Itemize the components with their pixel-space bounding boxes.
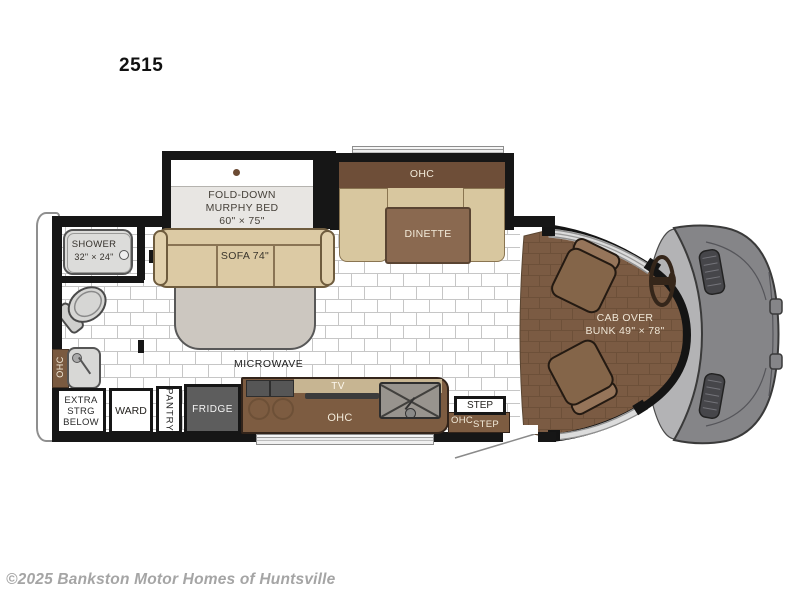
- tv-label: TV: [294, 381, 382, 392]
- floorplan-page: 2515: [0, 0, 800, 600]
- fridge-label: FRIDGE: [192, 404, 233, 415]
- wall-bath-bottom: [52, 276, 144, 283]
- cab-over-bunk-label: CAB OVER BUNK 49" × 78": [563, 312, 687, 338]
- pantry-label: PANTRY: [164, 388, 175, 432]
- dinette-ohc-label: OHC: [380, 168, 464, 180]
- sofa-armrest-left: [153, 230, 168, 286]
- dinette-bench-left: [339, 188, 388, 262]
- side-mirror-bottom: [770, 354, 782, 369]
- floorplan-graphics: [0, 0, 800, 600]
- step-box: STEP: [454, 396, 506, 415]
- light-fixture-dot: [233, 169, 240, 176]
- sofa-label: SOFA 74": [195, 250, 295, 262]
- awning-rail-bottom: [256, 434, 434, 445]
- dinette-label: DINETTE: [385, 228, 471, 240]
- extra-storage-label: EXTRA STRG BELOW: [63, 395, 99, 428]
- fridge: FRIDGE: [184, 384, 241, 434]
- cooktop-burner-right: [270, 380, 294, 397]
- pantry-box: PANTRY: [156, 386, 182, 434]
- wall-bath-right: [137, 216, 145, 280]
- burner-ring-left: [248, 398, 270, 420]
- sofa-back-seam: [159, 244, 331, 246]
- rear-sink-faucet-arm: [78, 357, 91, 375]
- rear-ohc-label: OHC: [55, 356, 65, 378]
- tv: [305, 393, 379, 399]
- wardrobe-box: WARD: [109, 388, 153, 434]
- side-mirror-top: [770, 299, 782, 314]
- sofa-armrest-right: [320, 230, 335, 286]
- kitchen-faucet: [405, 408, 416, 419]
- wardrobe-label: WARD: [115, 405, 147, 417]
- entry-step-label: STEP: [473, 419, 499, 430]
- microwave-label: MICROWAVE: [234, 358, 303, 370]
- entry-ohc-label: OHC: [451, 415, 473, 426]
- cooktop-burner-left: [246, 380, 270, 397]
- wall-stub-bath-door: [138, 340, 144, 353]
- shower-drain: [119, 250, 129, 260]
- wall-bottom-right: [538, 432, 556, 442]
- kitchen-sink: [379, 382, 441, 419]
- kitchen-ohc-label: OHC: [300, 412, 380, 424]
- extra-storage-box: EXTRA STRG BELOW: [56, 388, 106, 434]
- step-box-label: STEP: [467, 400, 493, 411]
- murphy-bed-label: FOLD-DOWN MURPHY BED 60" × 75": [171, 189, 313, 228]
- burner-ring-right: [272, 398, 294, 420]
- watermark: ©2025 Bankston Motor Homes of Huntsville: [6, 571, 335, 589]
- rear-sink: [67, 347, 101, 389]
- shower-label: SHOWER 32" × 24": [66, 239, 122, 263]
